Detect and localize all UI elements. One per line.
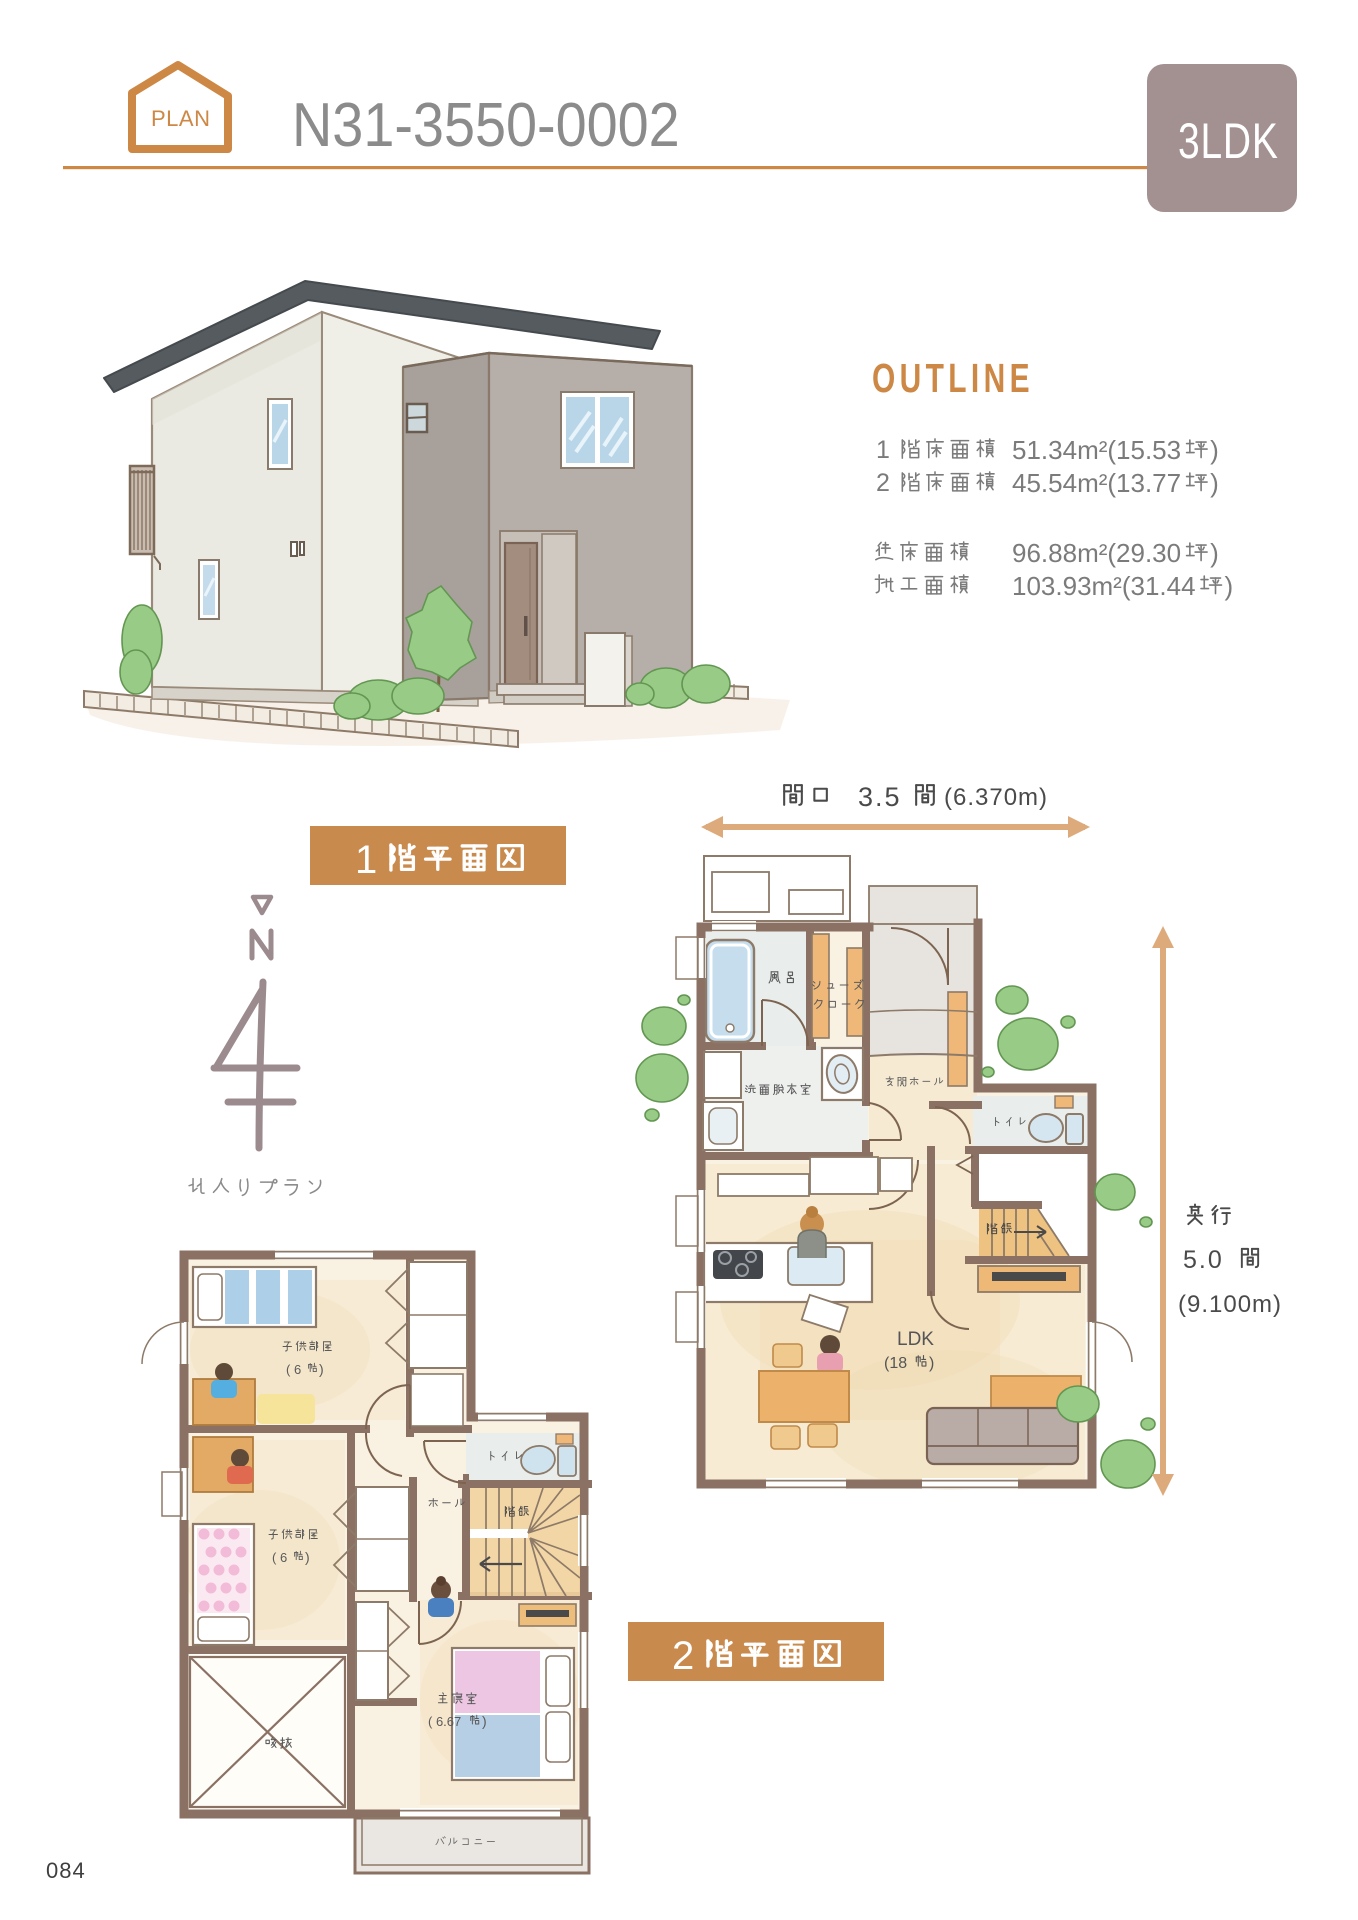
svg-text:PLAN: PLAN bbox=[151, 106, 210, 131]
svg-text:): ) bbox=[305, 1549, 310, 1565]
svg-text:): ) bbox=[929, 1355, 934, 1372]
svg-text:3LDK: 3LDK bbox=[1178, 112, 1279, 169]
svg-text:): ) bbox=[1210, 538, 1219, 568]
svg-text:2: 2 bbox=[876, 469, 890, 497]
svg-text:LDK: LDK bbox=[897, 1329, 934, 1350]
svg-text:(6.370m): (6.370m) bbox=[944, 784, 1048, 811]
svg-text:1: 1 bbox=[876, 436, 890, 464]
svg-text:2: 2 bbox=[672, 1634, 694, 1678]
svg-text:(18: (18 bbox=[884, 1355, 907, 1372]
svg-text:): ) bbox=[319, 1361, 324, 1377]
svg-text:51.34m²(15.53: 51.34m²(15.53 bbox=[1012, 435, 1181, 465]
svg-text:103.93m²(31.44: 103.93m²(31.44 bbox=[1012, 571, 1196, 601]
svg-text:(9.100m): (9.100m) bbox=[1178, 1291, 1282, 1318]
svg-text:45.54m²(13.77: 45.54m²(13.77 bbox=[1012, 468, 1181, 498]
svg-text:96.88m²(29.30: 96.88m²(29.30 bbox=[1012, 538, 1181, 568]
svg-text:( 6: ( 6 bbox=[286, 1362, 301, 1377]
svg-text:3.5: 3.5 bbox=[858, 782, 902, 812]
svg-text:084: 084 bbox=[46, 1858, 86, 1883]
svg-text:N31-3550-0002: N31-3550-0002 bbox=[292, 91, 680, 159]
svg-text:): ) bbox=[1210, 468, 1219, 498]
svg-text:): ) bbox=[1225, 571, 1234, 601]
svg-text:1: 1 bbox=[355, 838, 377, 882]
svg-text:( 6: ( 6 bbox=[272, 1550, 287, 1565]
svg-text:( 6.67: ( 6.67 bbox=[428, 1714, 461, 1729]
svg-text:): ) bbox=[1210, 435, 1219, 465]
svg-text:5.0: 5.0 bbox=[1183, 1246, 1224, 1274]
svg-text:): ) bbox=[482, 1713, 487, 1729]
svg-text:OUTLINE: OUTLINE bbox=[872, 355, 1034, 401]
